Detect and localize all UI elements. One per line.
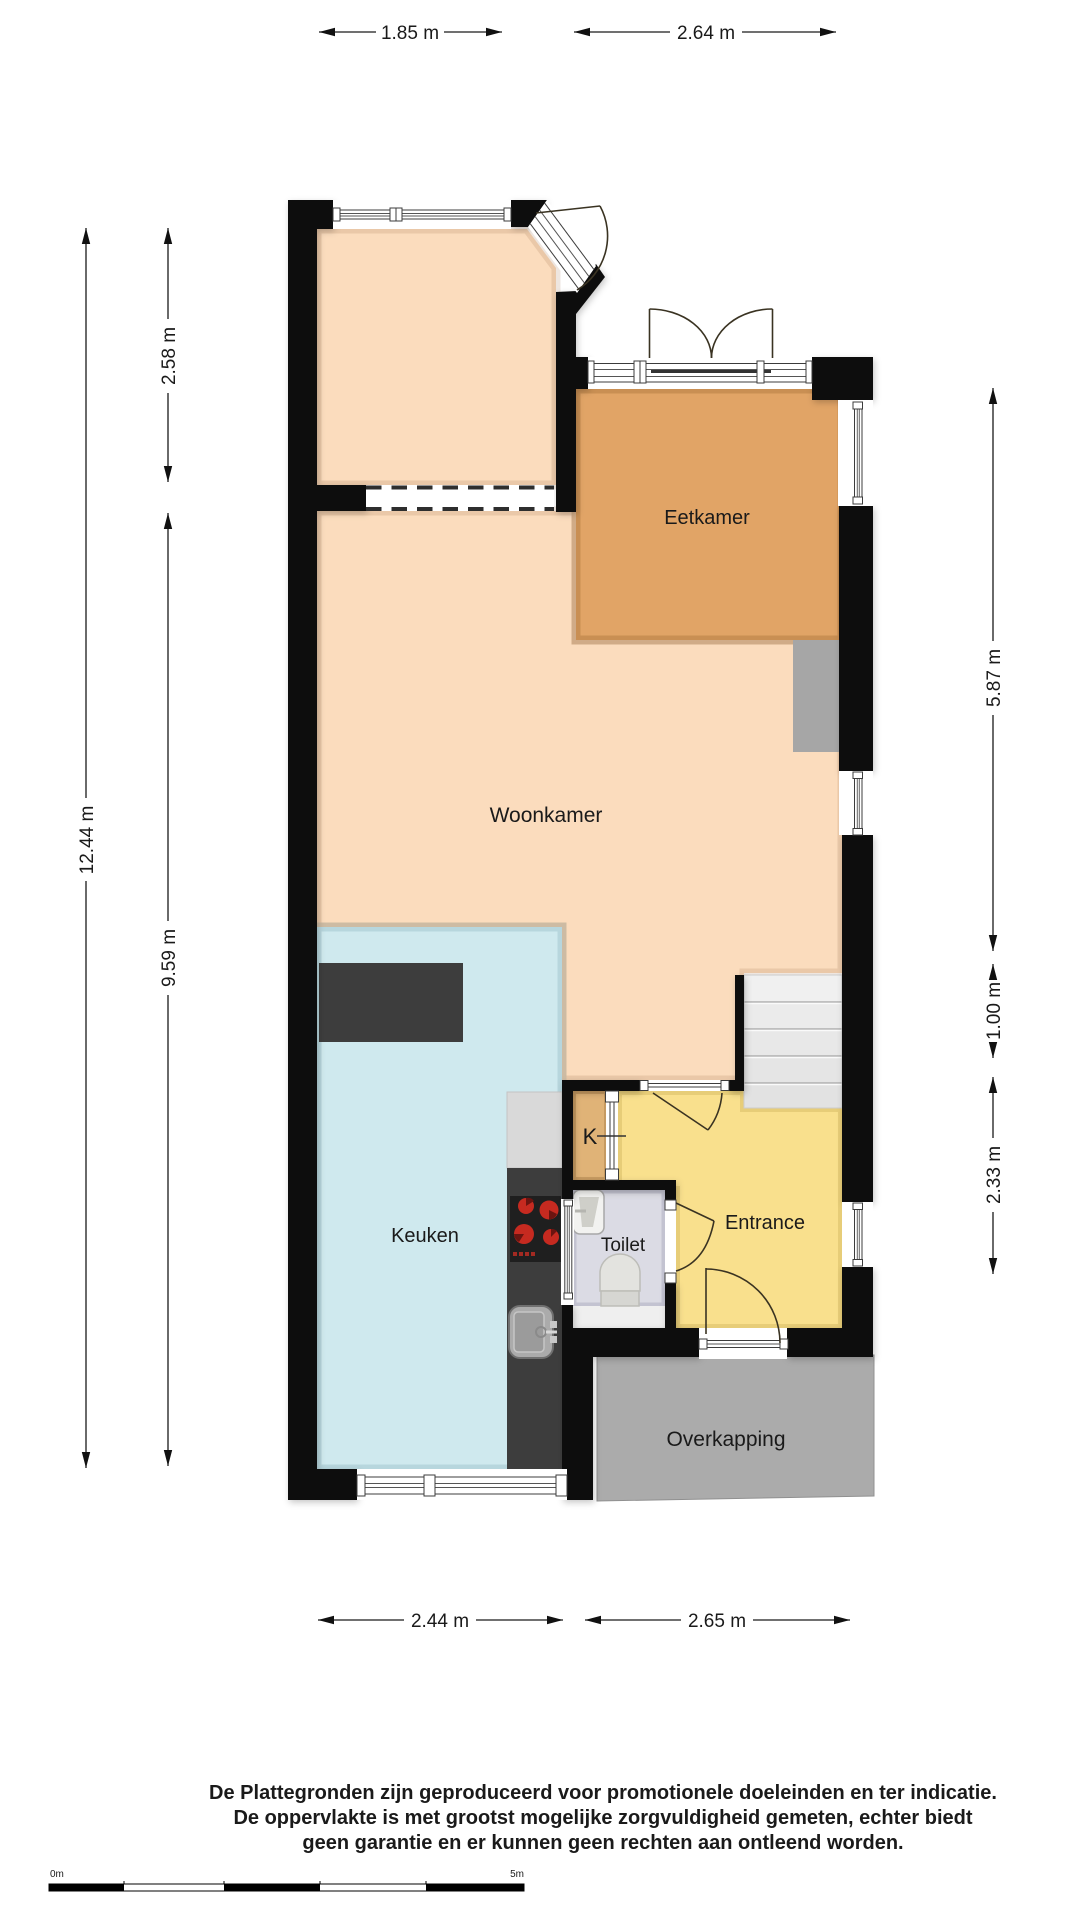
svg-text:Overkapping: Overkapping [666,1428,785,1451]
svg-text:Woonkamer: Woonkamer [490,804,603,827]
svg-text:De Plattegronden zijn geproduc: De Plattegronden zijn geproduceerd voor … [209,1782,997,1804]
svg-text:Keuken: Keuken [391,1225,459,1247]
svg-text:2.58 m: 2.58 m [159,327,180,385]
svg-text:De oppervlakte is met grootst: De oppervlakte is met grootst mogelijke … [233,1807,972,1829]
svg-text:1.85 m: 1.85 m [381,23,439,44]
svg-text:2.65 m: 2.65 m [688,1611,746,1632]
svg-text:geen garantie en er kunnen gee: geen garantie en er kunnen geen rechten … [302,1832,903,1854]
svg-text:Eetkamer: Eetkamer [664,507,750,529]
svg-text:Entrance: Entrance [725,1212,805,1234]
svg-text:9.59 m: 9.59 m [159,929,180,987]
svg-text:2.44 m: 2.44 m [411,1611,469,1632]
svg-text:5m: 5m [510,1869,524,1880]
svg-text:0m: 0m [50,1869,64,1880]
svg-text:K: K [583,1124,598,1149]
svg-text:1.00 m: 1.00 m [984,982,1005,1040]
svg-text:2.33 m: 2.33 m [984,1146,1005,1204]
svg-text:5.87 m: 5.87 m [984,649,1005,707]
svg-text:12.44 m: 12.44 m [77,806,98,875]
svg-text:2.64 m: 2.64 m [677,23,735,44]
svg-text:Toilet: Toilet [601,1235,646,1256]
